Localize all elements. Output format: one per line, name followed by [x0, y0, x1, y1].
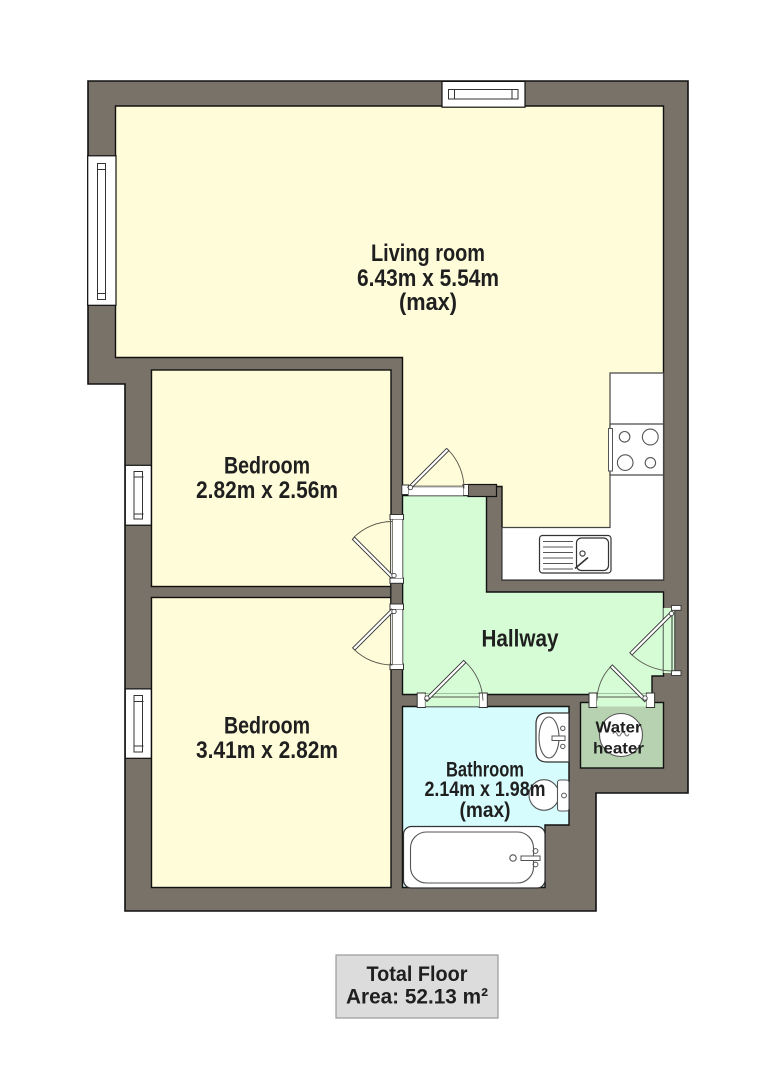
svg-text:Area: 52.13 m²: Area: 52.13 m²	[346, 985, 488, 1009]
svg-text:Living room: Living room	[371, 240, 485, 267]
svg-text:Bedroom: Bedroom	[224, 713, 310, 740]
svg-text:(max): (max)	[399, 289, 457, 316]
svg-text:2.14m x 1.98m: 2.14m x 1.98m	[425, 778, 546, 801]
svg-text:3.41m x 2.82m: 3.41m x 2.82m	[196, 737, 338, 764]
svg-text:heater: heater	[593, 741, 644, 758]
svg-text:Water: Water	[596, 720, 642, 737]
svg-text:Bedroom: Bedroom	[224, 453, 310, 480]
svg-text:(max): (max)	[460, 799, 511, 822]
svg-text:2.82m x 2.56m: 2.82m x 2.56m	[196, 477, 338, 504]
svg-text:Hallway: Hallway	[482, 626, 560, 653]
svg-text:6.43m x 5.54m: 6.43m x 5.54m	[357, 265, 499, 292]
svg-text:Total Floor: Total Floor	[367, 962, 469, 986]
